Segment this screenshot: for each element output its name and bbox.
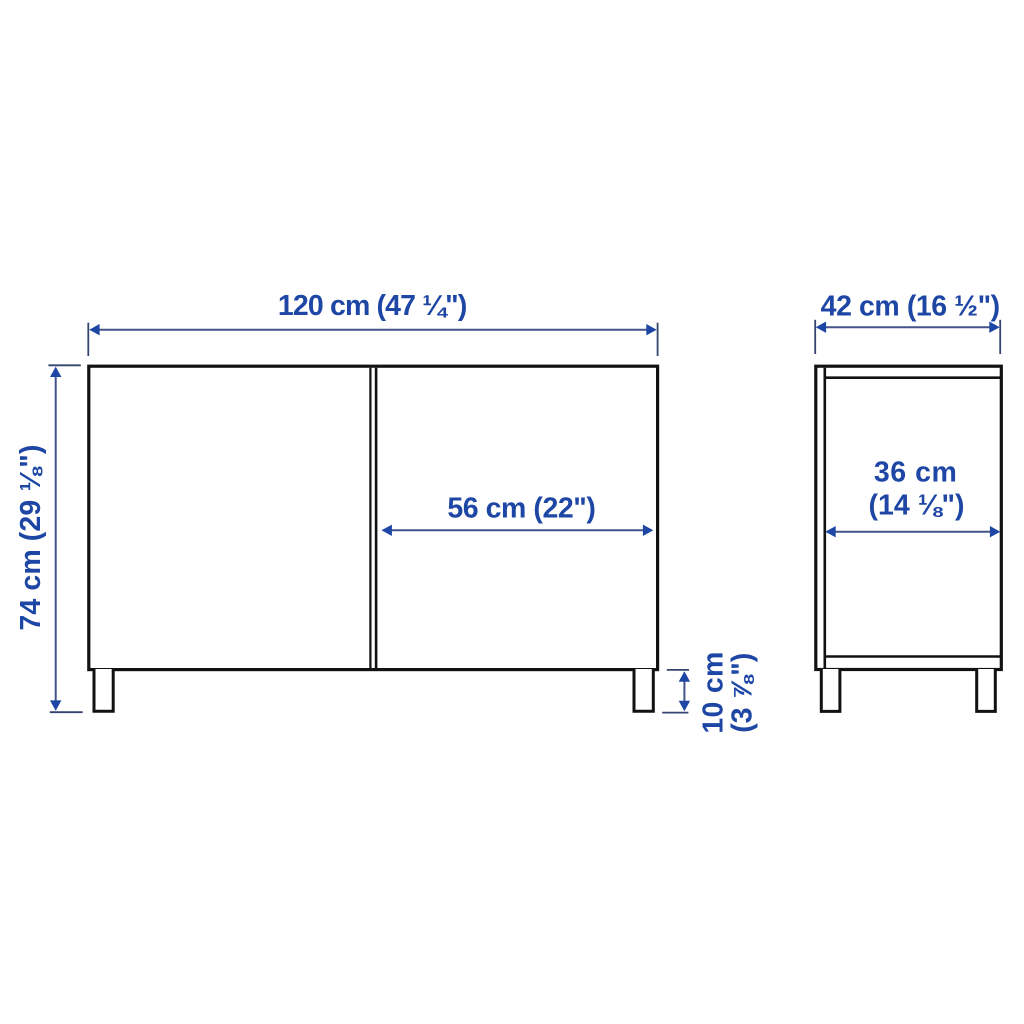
svg-text:120 cm (47 ¼"): 120 cm (47 ¼") [278, 290, 467, 322]
svg-text:42 cm (16 ½"): 42 cm (16 ½") [821, 290, 1001, 322]
svg-text:10 cm: 10 cm [697, 652, 729, 734]
svg-text:(3 ⅞"): (3 ⅞") [727, 653, 759, 733]
svg-text:36 cm: 36 cm [874, 457, 957, 489]
svg-text:56 cm (22"): 56 cm (22") [447, 492, 596, 524]
svg-text:(14 ⅛"): (14 ⅛") [869, 489, 965, 521]
svg-text:74 cm (29 ⅛"): 74 cm (29 ⅛") [15, 445, 47, 631]
